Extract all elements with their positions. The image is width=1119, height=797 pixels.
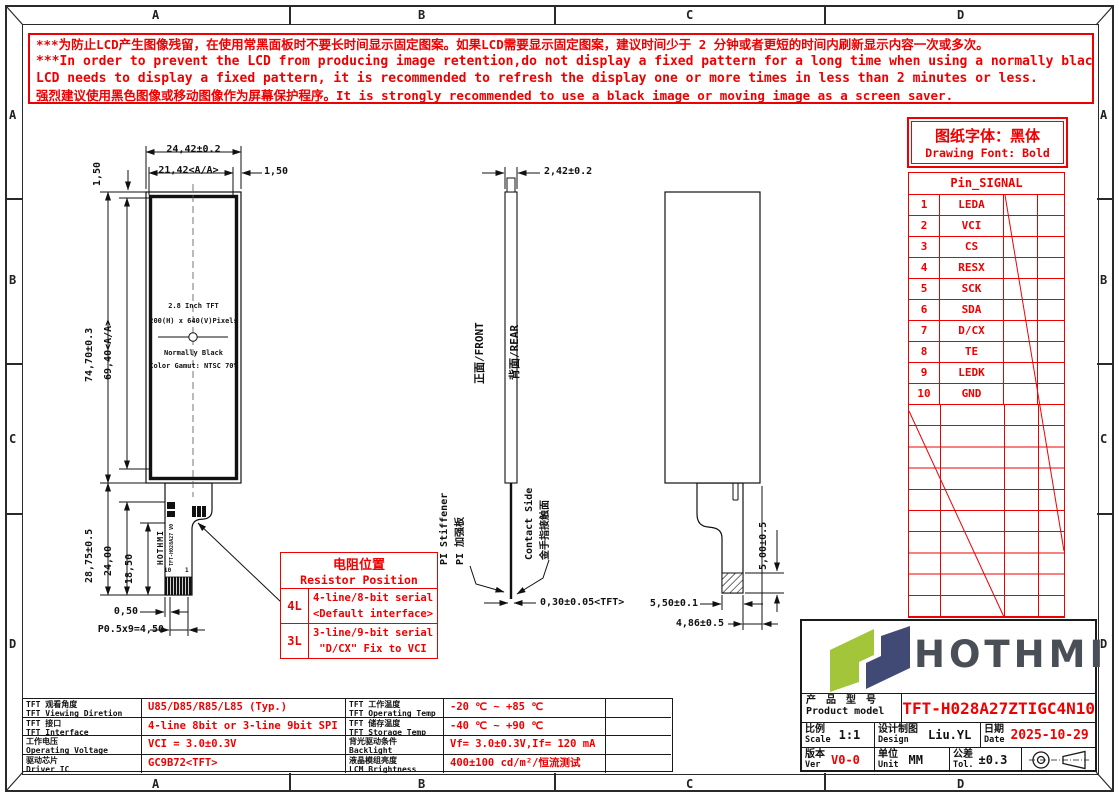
zone-row-a-right: A [1100, 108, 1107, 122]
dim-side-thickness: 2,42±0.2 [544, 166, 624, 177]
tolerance-value: ±0.3 [978, 753, 1007, 767]
spec-table: TFT 观看角度TFT Viewing Diretion U85/D85/R85… [22, 698, 673, 772]
zone-col-a-bottom: A [152, 777, 159, 791]
pin-row: 7D/CX [909, 321, 1064, 342]
dim-front-width-total: 24,42±0.2 [146, 144, 241, 155]
warning-line-en2: LCD needs to display a fixed pattern, it… [36, 70, 1086, 87]
pin-row: 1LEDA [909, 195, 1064, 216]
zone-row-c-left: C [9, 432, 16, 446]
retention-warning-box: ***为防止LCD产生图像残留，在使用常黑面板时不要长时间显示固定图案。如果LC… [28, 33, 1094, 104]
warning-line-cn1: ***为防止LCD产生图像残留，在使用常黑面板时不要长时间显示固定图案。如果LC… [36, 36, 1086, 53]
dim-front-height-aa: 69,40<A/A> [103, 320, 115, 380]
fpc-model-text: TFT-H028A27 V0 [166, 524, 178, 566]
zone-col-b-top: B [418, 8, 425, 22]
side-contact-side-en: Contact Side [524, 488, 536, 560]
zone-row-b-left: B [9, 273, 16, 287]
resistor-title-en: Resistor Position [281, 573, 437, 587]
pin-row: 10GND [909, 384, 1064, 405]
side-contact-side-cn: 金手指接触面 [540, 500, 552, 560]
version-cell: 版本Ver V0-0 [802, 748, 875, 772]
version-value: V0-0 [831, 753, 860, 767]
drawing-sheet: A B C D A B C D A B C D A B C D [0, 0, 1119, 797]
warning-line-cn2: 强烈建议使用黑色图像或移动图像作为屏幕保护程序。It is strongly r… [36, 87, 1086, 104]
unit-value: MM [908, 753, 922, 767]
side-rear-label: 背面/REAR [509, 325, 521, 380]
pin-row: 2VCI [909, 216, 1064, 237]
projection-symbol-cell [1022, 748, 1095, 772]
front-view-spec-text: 2.8 Inch TFT 200(H) x 640(V)Pixels Norma… [146, 298, 241, 370]
resistor-row-4l: 4L 4-line/8-bit serial<Default interface… [281, 589, 437, 624]
pin-row: 9LEDK [909, 363, 1064, 384]
pin-row: 5SCK [909, 279, 1064, 300]
pin-table-title: Pin_SIGNAL [909, 173, 1064, 195]
pin-signal-table: Pin_SIGNAL 1LEDA 2VCI 3CS 4RESX 5SCK 6SD… [908, 172, 1065, 618]
dim-tail-050: 0,50 [100, 606, 138, 617]
title-block: HOTHMI 产 品 型 号 Product model TFT-H028A27… [800, 619, 1097, 772]
side-front-label: 正面/FRONT [474, 322, 486, 384]
drawing-font-note: 图纸字体：黑体 Drawing Font: Bold [907, 117, 1068, 168]
zone-col-c-top: C [686, 8, 693, 22]
front-spec-res: 200(H) x 640(V)Pixels [146, 317, 241, 325]
pin-table-empty-rows [909, 405, 1064, 617]
front-spec-mode: Normally Black [146, 349, 241, 357]
side-pi-stiffener-en: PI Stiffener [439, 493, 451, 565]
date-cell: 日期Date 2025-10-29 [981, 723, 1095, 747]
hothmi-logo-text: HOTHMI [914, 633, 1107, 676]
design-cell: 设计制图Design Liu.YL [875, 723, 981, 747]
dim-front-margin-top: 1,50 [92, 162, 104, 186]
product-model-value: TFT-H028A27ZTIGC4N10 [902, 694, 1095, 722]
tolerance-cell: 公差Tol. ±0.3 [950, 748, 1022, 772]
scale-cell: 比例Scale 1:1 [802, 723, 875, 747]
fpc-pin10-label: 10 [164, 567, 171, 574]
font-note-en: Drawing Font: Bold [925, 146, 1050, 160]
pin-row: 6SDA [909, 300, 1064, 321]
font-note-cn: 图纸字体：黑体 [935, 125, 1040, 146]
warning-line-en1: ***In order to prevent the LCD from prod… [36, 53, 1086, 70]
fpc-pin1-label: 1 [185, 567, 189, 574]
design-value: Liu.YL [928, 728, 971, 742]
projection-symbol-icon [1027, 749, 1091, 771]
dim-rear-486: 4,86±0.5 [662, 618, 724, 629]
side-pi-stiffener-cn: PI 加强板 [455, 517, 467, 565]
dim-front-width-aa: 21,42<A/A> [141, 165, 236, 176]
zone-row-d-left: D [9, 637, 16, 651]
zone-col-d-top: D [957, 8, 964, 22]
dim-tail-length: 28,75±0.5 [84, 529, 96, 583]
zone-row-b-right: B [1100, 273, 1107, 287]
date-value: 2025-10-29 [1010, 728, 1088, 743]
hothmi-logo-icon [828, 624, 912, 694]
dim-tail-24: 24,00 [103, 546, 115, 576]
zone-row-c-right: C [1100, 432, 1107, 446]
zone-row-a-left: A [9, 108, 16, 122]
front-spec-size: 2.8 Inch TFT [146, 302, 241, 310]
resistor-title-cn: 电阻位置 [281, 554, 437, 573]
zone-col-b-bottom: B [418, 777, 425, 791]
zone-col-d-bottom: D [957, 777, 964, 791]
dim-rear-500: 5,00±0.5 [758, 522, 770, 570]
dim-connector-pitch: P0.5x9=4,50 [58, 624, 164, 635]
unit-cell: 单位Unit MM [875, 748, 950, 772]
resistor-row-3l: 3L 3-line/9-bit serial"D/CX" Fix to VCI [281, 624, 437, 658]
dim-rear-550: 5,50±0.1 [640, 598, 698, 609]
dim-front-margin-right: 1,50 [264, 166, 304, 177]
product-model-label: 产 品 型 号 Product model [802, 694, 902, 722]
pin-row: 8TE [909, 342, 1064, 363]
pin-row: 4RESX [909, 258, 1064, 279]
dim-tail-185: 18,50 [124, 554, 136, 584]
pin-row: 3CS [909, 237, 1064, 258]
scale-value: 1:1 [839, 728, 861, 742]
zone-col-c-bottom: C [686, 777, 693, 791]
front-spec-gamut: Color Gamut: NTSC 70% [146, 362, 241, 370]
resistor-position-table: 电阻位置 Resistor Position 4L 4-line/8-bit s… [280, 552, 438, 659]
dim-front-height-total: 74,70±0.3 [84, 328, 96, 382]
zone-col-a-top: A [152, 8, 159, 22]
